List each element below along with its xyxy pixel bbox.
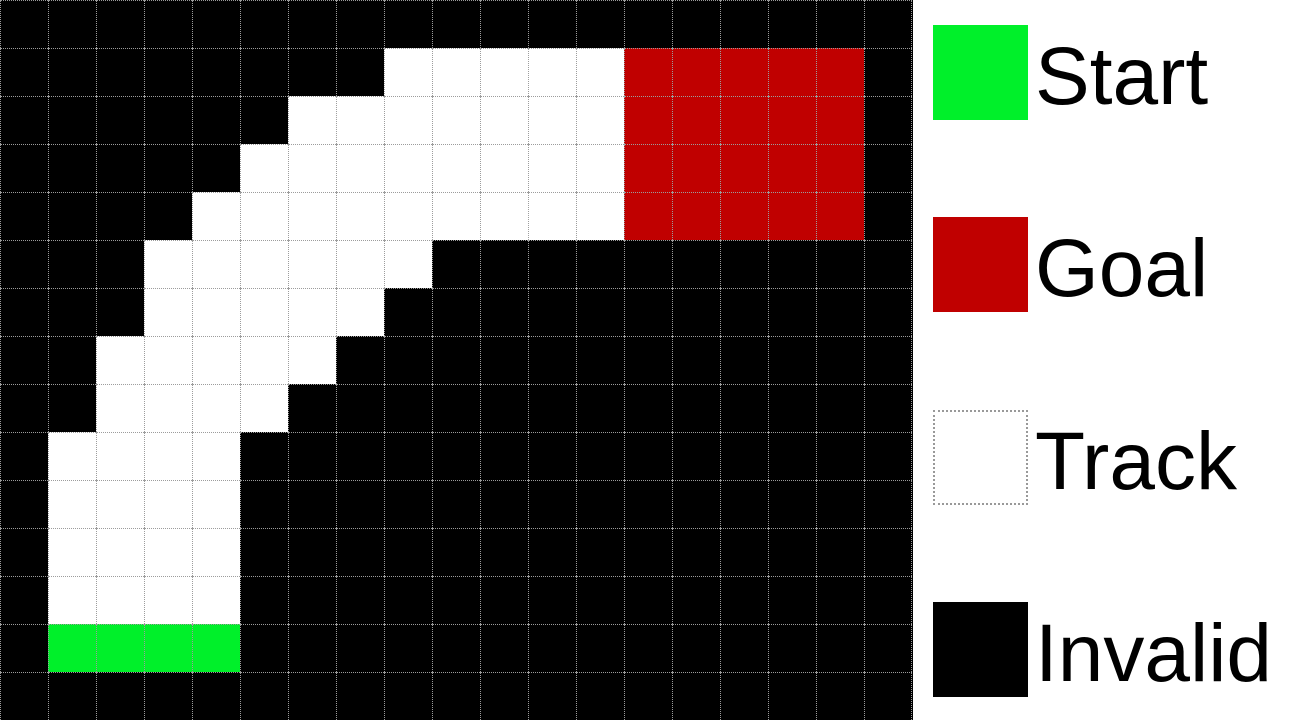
grid-cell-invalid [576, 240, 624, 288]
grid-cell-invalid [864, 528, 912, 576]
grid-cell-invalid [864, 672, 912, 720]
grid-cell-invalid [0, 240, 48, 288]
grid-cell-invalid [192, 144, 240, 192]
grid-cell-invalid [720, 288, 768, 336]
grid-cell-track [480, 144, 528, 192]
grid-cell-invalid [432, 336, 480, 384]
grid-cell-track [480, 96, 528, 144]
grid-cell-invalid [384, 624, 432, 672]
grid-cell-track [336, 96, 384, 144]
grid-cell-track [48, 432, 96, 480]
grid-cell-invalid [864, 576, 912, 624]
grid-cell-invalid [528, 384, 576, 432]
grid-cell-goal [672, 96, 720, 144]
grid-cell-invalid [864, 0, 912, 48]
grid-cell-invalid [0, 624, 48, 672]
grid-cell-track [48, 480, 96, 528]
grid-cell-invalid [96, 672, 144, 720]
grid-cell-invalid [480, 336, 528, 384]
grid-cell-track [96, 432, 144, 480]
grid-cell-track [528, 144, 576, 192]
grid-cell-invalid [480, 480, 528, 528]
grid-cell-goal [768, 144, 816, 192]
grid-cell-goal [624, 96, 672, 144]
grid-cell-invalid [624, 336, 672, 384]
grid-cell-invalid [672, 0, 720, 48]
grid-cell-invalid [384, 480, 432, 528]
grid-cell-invalid [480, 0, 528, 48]
grid-cell-track [144, 336, 192, 384]
grid-cell-invalid [48, 336, 96, 384]
grid-cell-invalid [528, 528, 576, 576]
grid-cell-invalid [336, 576, 384, 624]
grid-cell-invalid [0, 576, 48, 624]
grid-cell-invalid [192, 96, 240, 144]
grid-cell-invalid [480, 384, 528, 432]
grid-cell-invalid [96, 240, 144, 288]
grid-cell-goal [624, 48, 672, 96]
grid-cell-invalid [816, 240, 864, 288]
grid-cell-invalid [0, 144, 48, 192]
grid-cell-invalid [528, 336, 576, 384]
grid-cell-invalid [384, 336, 432, 384]
grid-cell-invalid [480, 624, 528, 672]
grid-cell-invalid [624, 528, 672, 576]
grid-cell-goal [624, 144, 672, 192]
grid-cell-invalid [720, 624, 768, 672]
grid-cell-invalid [432, 432, 480, 480]
grid-cell-invalid [864, 144, 912, 192]
grid-cell-invalid [336, 336, 384, 384]
grid-cell-invalid [240, 672, 288, 720]
grid-cell-invalid [0, 288, 48, 336]
grid-cell-start [192, 624, 240, 672]
grid-cell-invalid [0, 528, 48, 576]
grid-cell-invalid [672, 528, 720, 576]
grid-cell-invalid [576, 336, 624, 384]
grid-cell-invalid [528, 288, 576, 336]
grid-cell-invalid [576, 288, 624, 336]
grid-cell-track [192, 192, 240, 240]
grid-cell-invalid [576, 384, 624, 432]
grid-cell-invalid [336, 528, 384, 576]
legend-item-goal: Goal [933, 217, 1208, 312]
grid-cell-invalid [576, 480, 624, 528]
grid-cell-invalid [720, 432, 768, 480]
grid-cell-track [192, 528, 240, 576]
grid-cell-invalid [672, 624, 720, 672]
grid-cell-invalid [96, 48, 144, 96]
grid-cell-track [576, 96, 624, 144]
grid-cell-invalid [336, 384, 384, 432]
grid-cell-invalid [240, 576, 288, 624]
racetrack-figure: Start Goal Track Invalid [0, 0, 1302, 720]
grid-cell-invalid [864, 480, 912, 528]
grid-cell-track [288, 240, 336, 288]
grid-cell-track [48, 576, 96, 624]
grid-cell-track [96, 384, 144, 432]
grid-cell-goal [672, 48, 720, 96]
grid-cell-track [192, 432, 240, 480]
grid-cell-goal [768, 192, 816, 240]
grid-cell-invalid [432, 480, 480, 528]
grid-cell-invalid [240, 624, 288, 672]
grid-cell-invalid [288, 0, 336, 48]
grid-cell-invalid [816, 288, 864, 336]
grid-cell-invalid [480, 528, 528, 576]
legend-item-invalid: Invalid [933, 602, 1272, 697]
grid-cell-invalid [288, 624, 336, 672]
grid-cell-track [240, 144, 288, 192]
grid-cell-invalid [384, 528, 432, 576]
grid-cell-invalid [864, 384, 912, 432]
grid-cell-invalid [816, 432, 864, 480]
legend-label-goal: Goal [1035, 221, 1208, 316]
grid-cell-track [576, 144, 624, 192]
grid-cell-invalid [384, 384, 432, 432]
grid-cell-invalid [336, 624, 384, 672]
legend-item-start: Start [933, 25, 1208, 120]
grid-cell-track [288, 192, 336, 240]
grid-cell-track [144, 384, 192, 432]
grid-cell-track [432, 144, 480, 192]
grid-cell-invalid [144, 96, 192, 144]
grid-cell-invalid [336, 432, 384, 480]
grid-cell-invalid [144, 192, 192, 240]
grid-cell-track [144, 240, 192, 288]
grid-cell-invalid [288, 528, 336, 576]
grid-cell-track [144, 288, 192, 336]
grid-cell-invalid [48, 384, 96, 432]
grid-cell-invalid [768, 240, 816, 288]
grid-cell-goal [768, 96, 816, 144]
grid-cell-invalid [624, 624, 672, 672]
grid-cell-invalid [192, 48, 240, 96]
grid-cell-goal [720, 96, 768, 144]
grid-cell-track [144, 576, 192, 624]
grid-cell-invalid [816, 576, 864, 624]
grid-cell-invalid [576, 624, 624, 672]
grid-cell-invalid [48, 240, 96, 288]
grid-cell-invalid [720, 336, 768, 384]
grid-cell-invalid [288, 48, 336, 96]
grid-cell-invalid [144, 48, 192, 96]
grid-cell-invalid [384, 288, 432, 336]
grid-cell-goal [672, 192, 720, 240]
grid-cell-invalid [624, 240, 672, 288]
grid-cell-invalid [816, 336, 864, 384]
grid-cell-invalid [240, 480, 288, 528]
grid-cell-track [240, 336, 288, 384]
grid-cell-invalid [624, 480, 672, 528]
grid-cell-invalid [864, 48, 912, 96]
grid-cell-goal [816, 48, 864, 96]
grid-cell-track [240, 192, 288, 240]
grid-cell-invalid [768, 528, 816, 576]
grid-cell-invalid [432, 576, 480, 624]
grid-cell-track [384, 240, 432, 288]
grid-cell-invalid [864, 240, 912, 288]
grid-cell-invalid [480, 288, 528, 336]
grid-cell-invalid [720, 576, 768, 624]
grid-cell-track [144, 480, 192, 528]
grid-cell-invalid [432, 384, 480, 432]
grid-cell-invalid [768, 384, 816, 432]
grid-cell-track [336, 288, 384, 336]
grid-cell-invalid [288, 480, 336, 528]
grid-cell-invalid [624, 432, 672, 480]
grid-cell-invalid [672, 288, 720, 336]
grid-cell-goal [720, 144, 768, 192]
grid-cell-invalid [816, 672, 864, 720]
grid-cell-invalid [480, 240, 528, 288]
grid-cell-invalid [720, 240, 768, 288]
grid-cell-track [384, 192, 432, 240]
grid-cell-invalid [624, 384, 672, 432]
grid-cell-invalid [240, 0, 288, 48]
start-swatch [933, 25, 1028, 120]
grid-cell-invalid [576, 576, 624, 624]
grid-cell-invalid [480, 576, 528, 624]
grid-cell-track [192, 384, 240, 432]
grid-cell-invalid [768, 624, 816, 672]
grid-cell-goal [816, 96, 864, 144]
grid-cell-track [240, 288, 288, 336]
grid-cell-invalid [624, 0, 672, 48]
grid-cell-invalid [288, 672, 336, 720]
grid-cell-invalid [864, 192, 912, 240]
grid-cell-invalid [480, 672, 528, 720]
grid-cell-track [576, 192, 624, 240]
grid-cell-track [288, 144, 336, 192]
grid-cell-invalid [816, 624, 864, 672]
grid-cell-invalid [432, 528, 480, 576]
grid-cell-track [192, 576, 240, 624]
grid-cell-invalid [864, 336, 912, 384]
grid-cell-invalid [624, 576, 672, 624]
grid-cell-track [96, 576, 144, 624]
grid-cell-invalid [0, 432, 48, 480]
grid-cell-track [48, 528, 96, 576]
grid-cell-invalid [240, 528, 288, 576]
grid-cell-track [576, 48, 624, 96]
grid-cell-invalid [144, 0, 192, 48]
grid-cell-invalid [864, 96, 912, 144]
grid-cell-track [384, 144, 432, 192]
grid-cell-track [336, 192, 384, 240]
grid-cell-invalid [528, 624, 576, 672]
grid-cell-invalid [0, 672, 48, 720]
grid-cell-invalid [0, 480, 48, 528]
grid-cell-invalid [192, 672, 240, 720]
grid-cell-track [432, 96, 480, 144]
grid-cell-invalid [864, 288, 912, 336]
grid-cell-invalid [0, 96, 48, 144]
grid-cell-track [288, 288, 336, 336]
grid-cell-invalid [624, 288, 672, 336]
grid-cell-invalid [864, 432, 912, 480]
grid-cell-invalid [720, 0, 768, 48]
grid-cell-track [240, 384, 288, 432]
grid-cell-invalid [768, 480, 816, 528]
legend-item-track: Track [933, 410, 1237, 505]
grid-cell-invalid [96, 192, 144, 240]
grid-cell-invalid [672, 576, 720, 624]
grid-cell-invalid [768, 336, 816, 384]
legend: Start Goal Track Invalid [913, 0, 1302, 720]
grid-cell-goal [624, 192, 672, 240]
grid-cell-invalid [288, 432, 336, 480]
grid-cell-invalid [864, 624, 912, 672]
legend-label-track: Track [1035, 414, 1237, 509]
grid-cell-track [96, 528, 144, 576]
grid-cell-invalid [720, 672, 768, 720]
grid-cell-invalid [0, 192, 48, 240]
grid-cell-invalid [240, 96, 288, 144]
grid-cell-track [432, 48, 480, 96]
grid-cell-invalid [624, 672, 672, 720]
grid-cell-invalid [288, 576, 336, 624]
grid-cell-track [192, 240, 240, 288]
track-swatch [933, 410, 1028, 505]
grid-cell-invalid [144, 672, 192, 720]
grid-cell-start [48, 624, 96, 672]
grid-cell-track [96, 480, 144, 528]
grid-cell-track [528, 96, 576, 144]
grid-cell-invalid [720, 528, 768, 576]
grid-cell-invalid [672, 432, 720, 480]
grid-cell-invalid [384, 672, 432, 720]
grid-cell-invalid [384, 432, 432, 480]
grid-cell-track [480, 192, 528, 240]
grid-cell-invalid [768, 432, 816, 480]
grid-cell-invalid [768, 288, 816, 336]
grid-cell-invalid [0, 336, 48, 384]
grid-cell-invalid [528, 672, 576, 720]
grid-cell-invalid [0, 0, 48, 48]
grid-cell-track [192, 480, 240, 528]
grid-cell-track [96, 336, 144, 384]
grid-cell-invalid [576, 0, 624, 48]
grid-cell-invalid [768, 576, 816, 624]
grid-cell-invalid [96, 96, 144, 144]
grid-cell-track [144, 432, 192, 480]
goal-swatch [933, 217, 1028, 312]
grid-cell-invalid [0, 384, 48, 432]
grid-cell-start [96, 624, 144, 672]
grid-cell-invalid [96, 288, 144, 336]
grid-cell-invalid [672, 480, 720, 528]
grid-cell-invalid [240, 432, 288, 480]
grid-cell-invalid [96, 144, 144, 192]
grid-cell-invalid [432, 288, 480, 336]
grid-cell-track [528, 192, 576, 240]
grid-cell-track [336, 240, 384, 288]
grid-cell-invalid [528, 432, 576, 480]
grid-cell-goal [816, 192, 864, 240]
grid-cell-invalid [768, 0, 816, 48]
grid-cell-invalid [816, 528, 864, 576]
grid-cell-invalid [528, 240, 576, 288]
grid-cell-track [240, 240, 288, 288]
grid-cell-invalid [384, 576, 432, 624]
grid-cell-invalid [48, 288, 96, 336]
grid-cell-invalid [192, 0, 240, 48]
grid-cell-invalid [816, 384, 864, 432]
grid-cell-invalid [672, 672, 720, 720]
grid-cell-track [432, 192, 480, 240]
grid-cell-invalid [144, 144, 192, 192]
grid-cell-track [288, 96, 336, 144]
grid-cell-goal [672, 144, 720, 192]
grid-cell-invalid [672, 336, 720, 384]
grid-cell-invalid [816, 0, 864, 48]
grid-cell-invalid [528, 480, 576, 528]
grid-cell-track [528, 48, 576, 96]
grid-cell-track [384, 48, 432, 96]
grid-cell-invalid [432, 0, 480, 48]
grid-cell-invalid [672, 384, 720, 432]
grid-cell-goal [816, 144, 864, 192]
grid-cell-invalid [48, 192, 96, 240]
grid-cell-invalid [48, 48, 96, 96]
grid-cell-invalid [528, 0, 576, 48]
grid-cell-invalid [48, 144, 96, 192]
grid-cell-invalid [816, 480, 864, 528]
grid-cell-track [480, 48, 528, 96]
grid-cell-start [144, 624, 192, 672]
grid-cell-invalid [576, 528, 624, 576]
grid-cell-invalid [576, 672, 624, 720]
grid-cell-invalid [720, 384, 768, 432]
grid-cell-goal [768, 48, 816, 96]
invalid-swatch [933, 602, 1028, 697]
legend-label-invalid: Invalid [1035, 606, 1272, 701]
grid-cell-invalid [240, 48, 288, 96]
grid-cell-invalid [480, 432, 528, 480]
grid-cell-invalid [288, 384, 336, 432]
grid-cell-invalid [432, 672, 480, 720]
grid-cell-invalid [336, 0, 384, 48]
grid-cell-invalid [96, 0, 144, 48]
legend-label-start: Start [1035, 29, 1208, 124]
grid-cell-goal [720, 48, 768, 96]
grid-cell-invalid [432, 240, 480, 288]
grid-cell-track [384, 96, 432, 144]
grid-cell-invalid [384, 0, 432, 48]
grid-cell-invalid [672, 240, 720, 288]
racetrack-grid [0, 0, 913, 720]
grid-cell-invalid [528, 576, 576, 624]
grid-cell-invalid [48, 672, 96, 720]
grid-cell-invalid [0, 48, 48, 96]
grid-cell-track [336, 144, 384, 192]
grid-cell-invalid [336, 48, 384, 96]
grid-cell-invalid [336, 672, 384, 720]
grid-cell-track [288, 336, 336, 384]
grid-cell-invalid [48, 0, 96, 48]
grid-cell-track [192, 288, 240, 336]
grid-cell-track [192, 336, 240, 384]
grid-cell-invalid [720, 480, 768, 528]
grid-cell-track [144, 528, 192, 576]
grid-cell-goal [720, 192, 768, 240]
grid-cell-invalid [336, 480, 384, 528]
grid-cell-invalid [576, 432, 624, 480]
grid-cell-invalid [432, 624, 480, 672]
grid-cell-invalid [768, 672, 816, 720]
grid-cell-invalid [48, 96, 96, 144]
